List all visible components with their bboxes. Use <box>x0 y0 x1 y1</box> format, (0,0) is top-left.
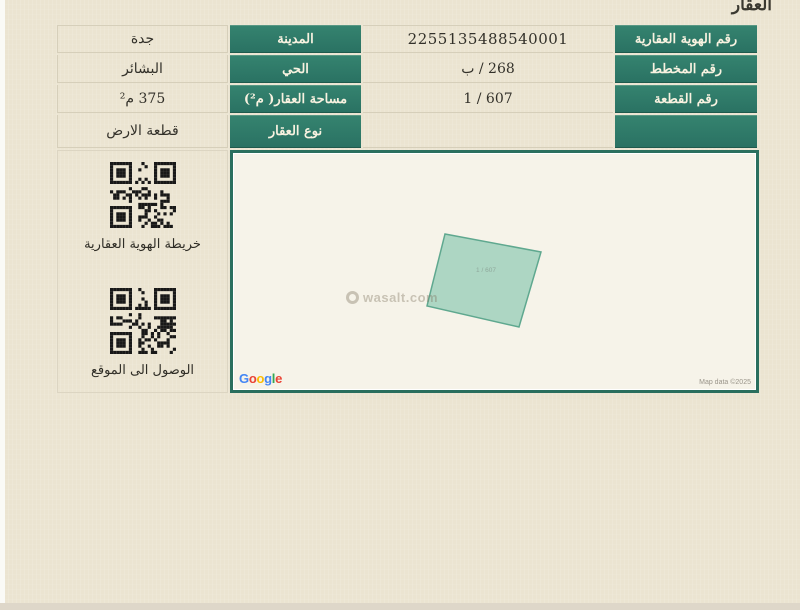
field-district-label: الحي <box>230 55 361 83</box>
field-type-value: قطعة الارض <box>57 115 228 148</box>
bottom-scroll-strip[interactable] <box>0 603 800 610</box>
qr-location-label: الوصول الى الموقع <box>68 363 218 379</box>
field-area-label: مساحة العقار( م²) <box>230 85 361 113</box>
qr-code-identity-map-icon <box>110 162 176 228</box>
qr-identity-map-label: خريطة الهوية العقارية <box>68 237 218 253</box>
field-empty-value <box>363 115 613 148</box>
map-panel: 607 / 1 wasalt.com Google Map data ©2025 <box>230 150 759 393</box>
field-empty-label <box>615 115 757 148</box>
wasalt-logo-icon <box>346 291 359 304</box>
field-district-value: البشائر <box>57 55 228 83</box>
map-canvas[interactable]: 607 / 1 wasalt.com Google Map data ©2025 <box>233 153 756 390</box>
field-plot-number-label: رقم القطعة <box>615 85 757 113</box>
qr-code-location-icon <box>110 288 176 354</box>
field-plan-number-label: رقم المخطط <box>615 55 757 83</box>
wasalt-watermark: wasalt.com <box>343 290 438 305</box>
field-plan-number-value: 268 / ب <box>363 55 613 83</box>
field-area-value: 375 م² <box>57 85 228 113</box>
parcel-label: 607 / 1 <box>451 267 521 274</box>
property-report-page: العقار رقم الهوية العقارية رقم المخطط رق… <box>0 0 800 610</box>
field-city-label: المدينة <box>230 25 361 53</box>
qr-sidebar: خريطة الهوية العقارية الوصول الى الموقع <box>57 150 228 393</box>
field-city-value: جدة <box>57 25 228 53</box>
field-type-label: نوع العقار <box>230 115 361 148</box>
map-attribution: Map data ©2025 <box>699 379 751 386</box>
wasalt-watermark-text: wasalt.com <box>363 290 438 305</box>
page-title: العقار <box>732 0 772 15</box>
field-plot-number-value: 607 / 1 <box>363 85 613 113</box>
field-property-id-value: 2255135488540001 <box>363 25 613 53</box>
google-logo[interactable]: Google <box>239 371 282 386</box>
field-property-id-label: رقم الهوية العقارية <box>615 25 757 53</box>
left-edge-strip <box>0 0 5 610</box>
